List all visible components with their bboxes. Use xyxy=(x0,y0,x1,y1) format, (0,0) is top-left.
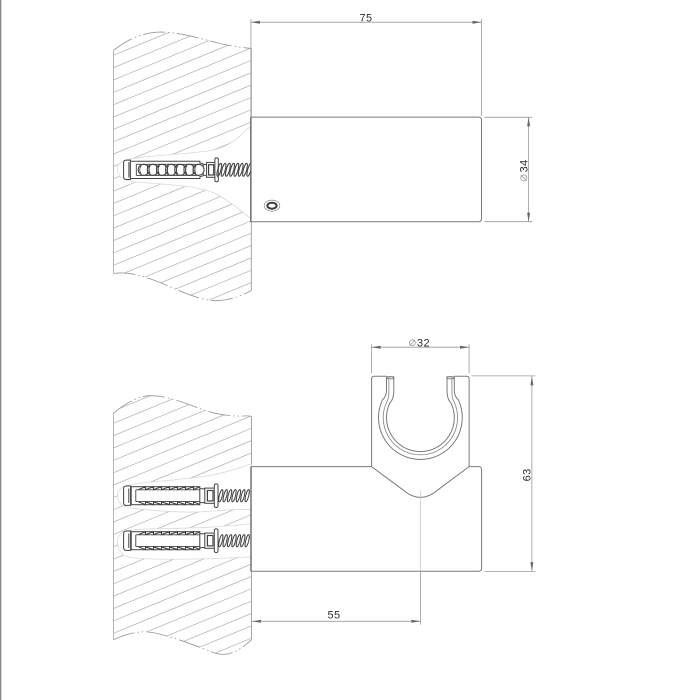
svg-text:55: 55 xyxy=(328,610,341,622)
svg-text:63: 63 xyxy=(521,468,533,481)
svg-text:75: 75 xyxy=(360,13,373,25)
svg-text:32: 32 xyxy=(417,337,430,349)
svg-text:34: 34 xyxy=(519,159,531,172)
